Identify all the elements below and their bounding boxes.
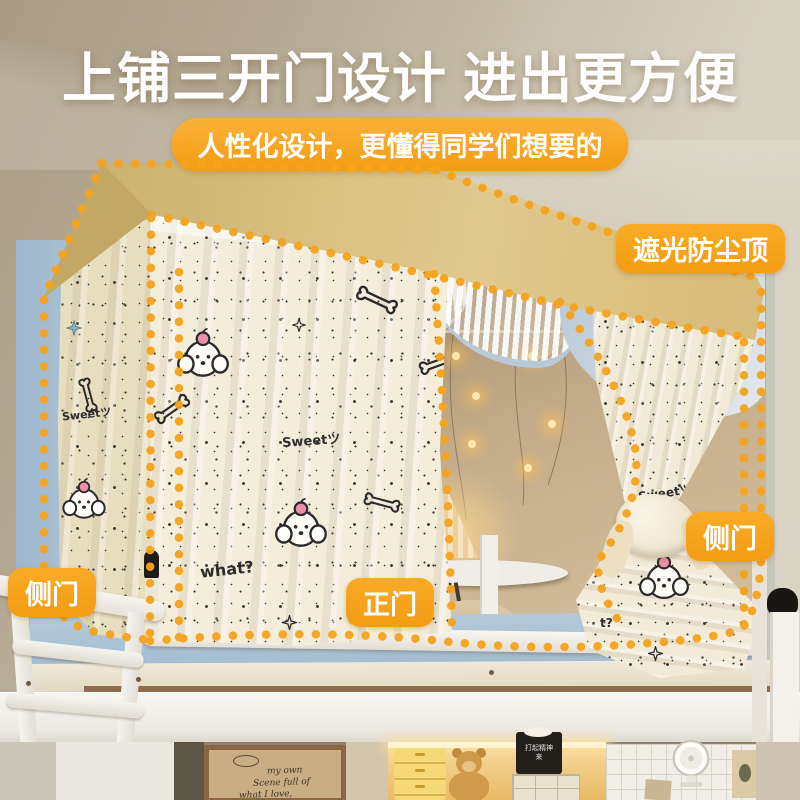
- label-front-door: 正门: [346, 578, 434, 627]
- fairy-light: [468, 440, 476, 448]
- dog-print-icon: [174, 328, 232, 382]
- screw: [136, 677, 141, 682]
- poster-frame: my own Scene full of what I love,: [204, 745, 346, 800]
- card-plant: [739, 764, 751, 782]
- poster-line: Scene full of: [253, 777, 310, 789]
- dog-print-icon: [272, 498, 330, 552]
- fairy-light: [452, 352, 460, 360]
- drawer-unit: [394, 748, 446, 800]
- desk-fan: [668, 736, 714, 792]
- organizer: [512, 774, 580, 800]
- fairy-light: [548, 420, 556, 428]
- label-side-door-right: 侧门: [686, 512, 774, 561]
- dog-print-icon: [636, 552, 692, 604]
- print-t: t?: [600, 616, 613, 630]
- dark-gap: [174, 742, 204, 800]
- sign-line: 来: [516, 753, 562, 762]
- drawer-handle: [415, 769, 425, 772]
- poster-line: my own: [267, 765, 303, 776]
- wardrobe-door: [56, 742, 176, 800]
- underbed-area: my own Scene full of what I love, 打起精神 来: [0, 742, 800, 800]
- teddy-body: [449, 772, 489, 800]
- teddy-bear: [448, 748, 494, 800]
- poster-logo: [233, 755, 259, 767]
- fairy-light: [472, 392, 480, 400]
- dog-print-icon: [60, 478, 108, 523]
- screw: [489, 670, 494, 675]
- screw: [26, 681, 31, 686]
- sparkle-icon: [282, 615, 297, 630]
- print-sweet: Sweetツ: [281, 428, 340, 451]
- sign-line: 打起精神: [516, 744, 562, 753]
- page-title: 上铺三开门设计 进出更方便: [0, 34, 800, 113]
- sparkle-icon: [66, 320, 82, 336]
- subtitle-dot: [182, 142, 191, 151]
- bedpost-back: [752, 552, 767, 752]
- sparkle-icon: [648, 646, 663, 661]
- label-roof: 遮光防尘顶: [616, 224, 785, 273]
- wall-under-right: [756, 742, 800, 800]
- sign-text: 打起精神 来: [516, 744, 562, 762]
- sign-bunny: [524, 727, 552, 737]
- fairy-light: [524, 464, 532, 472]
- label-side-door-left: 侧门: [8, 568, 96, 617]
- sparkle-icon: [292, 318, 306, 332]
- poster-line: what I love,: [239, 789, 293, 800]
- promo-image: Sweetツ Sweetツ what? Sweetツ t?: [0, 0, 800, 800]
- drawer-handle: [415, 753, 425, 756]
- shelf-sign: 打起精神 来: [516, 732, 562, 774]
- teddy-muzzle: [462, 761, 476, 772]
- drawer-handle: [415, 785, 425, 788]
- cabinet-side: [0, 742, 56, 800]
- page-subtitle: 人性化设计，更懂得同学们想要的: [172, 118, 629, 171]
- photo-card: [732, 750, 758, 798]
